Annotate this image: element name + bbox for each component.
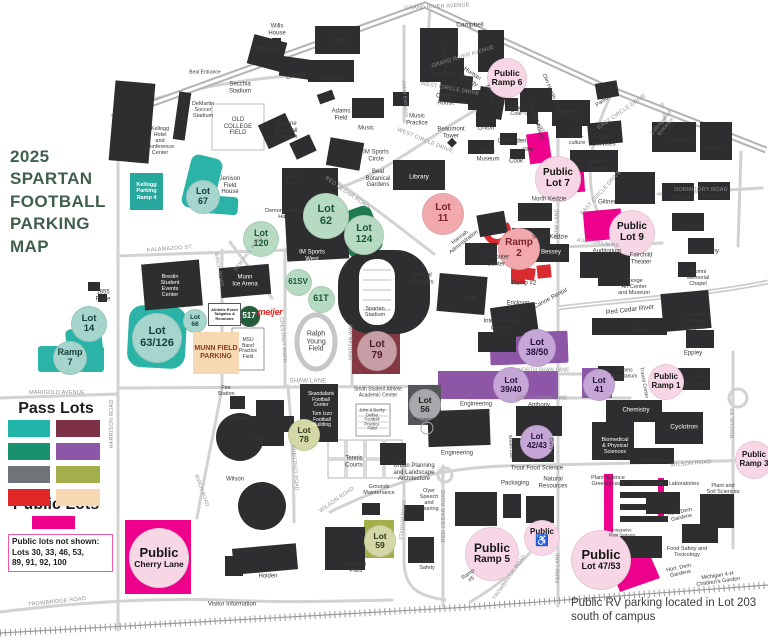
lot-62-line2: 62 bbox=[320, 216, 332, 228]
legend-pass-swatch-0 bbox=[8, 420, 50, 437]
ramp-2: Ramp2 bbox=[498, 228, 540, 270]
lot-78: Lot78 bbox=[288, 419, 320, 451]
lot-124-line2: 124 bbox=[356, 235, 373, 246]
public-lot-47-53-line1: Public bbox=[581, 548, 620, 562]
lot-63-126: Lot63/126 bbox=[132, 313, 182, 363]
public-lot-7: PublicLot 7 bbox=[535, 156, 581, 202]
lot-67: Lot67 bbox=[186, 180, 220, 214]
lot-14-line2: 14 bbox=[84, 324, 95, 334]
public-ramp-6: PublicRamp 6 bbox=[487, 58, 527, 98]
tailgate-sign-text: Reunions bbox=[215, 317, 233, 322]
lot-78-line2: 78 bbox=[299, 435, 308, 444]
public-lot-9: PublicLot 9 bbox=[609, 210, 655, 256]
lot-68-line2: 68 bbox=[191, 321, 198, 328]
lot-41-line2: 41 bbox=[594, 385, 603, 394]
public-ramp-3: PublicRamp 3 bbox=[735, 441, 768, 479]
munn-field-parking-text: PARKING bbox=[200, 353, 232, 361]
public-lot-47-53-line2: Lot 47/53 bbox=[581, 562, 620, 572]
public-ramp-6-line2: Ramp 6 bbox=[492, 78, 523, 87]
legend-pass-swatch-1 bbox=[56, 420, 100, 437]
legend-pass-swatch-5 bbox=[56, 466, 100, 483]
public-lot-9-line2: Lot 9 bbox=[620, 233, 644, 244]
legend-pass-swatch-6 bbox=[8, 489, 50, 506]
public-cherry-lane-line1: Public bbox=[139, 546, 178, 560]
lot-61t-line1: 61T bbox=[313, 294, 329, 304]
kellogg-parking-ramp-4: KelloggParkingRamp 4 bbox=[130, 173, 163, 210]
lot-68: Lot68 bbox=[183, 309, 207, 333]
ramp-7-line2: 7 bbox=[67, 358, 72, 368]
public-ramp-1: PublicRamp 1 bbox=[648, 364, 684, 400]
ramp-2-line2: 2 bbox=[516, 249, 522, 260]
kellogg-parking-ramp-4-text: Ramp 4 bbox=[137, 195, 157, 201]
lot-61t: 61T bbox=[308, 286, 335, 313]
lot-38-50: Lot38/50 bbox=[518, 329, 556, 367]
lot-39-40-line2: 39/40 bbox=[500, 385, 521, 394]
lot-11: Lot11 bbox=[422, 193, 464, 235]
lot-56: Lot56 bbox=[409, 389, 441, 421]
lot-62: Lot62 bbox=[303, 193, 349, 239]
public-ramp-5-line2: Ramp 5 bbox=[474, 555, 510, 566]
lot-67-line2: 67 bbox=[198, 197, 208, 207]
lot-11-line2: 11 bbox=[438, 214, 449, 225]
public-lot-47-53: PublicLot 47/53 bbox=[571, 530, 631, 590]
lot-63-126-line2: 63/126 bbox=[140, 338, 174, 350]
munn-field-parking-text: MUNN FIELD bbox=[194, 345, 237, 353]
lot-120-line2: 120 bbox=[253, 239, 268, 249]
lot-41: Lot41 bbox=[583, 369, 615, 401]
public-ramp-1-line2: Ramp 1 bbox=[652, 382, 681, 391]
lot-61sv-line1: 61SV bbox=[288, 278, 308, 287]
lot-68-line1: Lot bbox=[190, 314, 200, 321]
public-accessible-line2: ♿ bbox=[535, 536, 549, 548]
public-ramp-5: PublicRamp 5 bbox=[465, 527, 519, 581]
legend-pass-lots-title: Pass Lots bbox=[8, 400, 104, 418]
legend-pass-swatch-2 bbox=[8, 443, 50, 460]
lot-38-50-line2: 38/50 bbox=[526, 348, 549, 358]
public-cherry-lane: PublicCherry Lane bbox=[129, 528, 189, 588]
legend-pass-swatch-4 bbox=[8, 466, 50, 483]
public-cherry-lane-line2: Cherry Lane bbox=[134, 560, 184, 569]
public-lot-7-line2: Lot 7 bbox=[546, 179, 570, 190]
lot-42-43-line2: 42/43 bbox=[527, 442, 547, 451]
public-accessible: Public♿ bbox=[524, 520, 560, 556]
legend-pass-swatch-7 bbox=[56, 489, 100, 506]
lot-120: Lot120 bbox=[243, 221, 279, 257]
lot-79: Lot79 bbox=[357, 331, 397, 371]
legend-note: Public lots not shown: Lots 30, 33, 46, … bbox=[8, 534, 113, 572]
lot-79-line2: 79 bbox=[371, 351, 382, 362]
lot-56-line2: 56 bbox=[420, 405, 429, 414]
lot-39-40: Lot39/40 bbox=[493, 367, 529, 403]
spartan-stadium-shape bbox=[338, 250, 430, 334]
ramp-7: Ramp7 bbox=[53, 341, 87, 375]
public-ramp-3-line2: Ramp 3 bbox=[740, 460, 768, 469]
lot-14: Lot14 bbox=[71, 306, 107, 342]
ralph-young-track bbox=[297, 315, 335, 369]
lot-124: Lot124 bbox=[344, 215, 384, 255]
tailgate-sign: Athletic EventTailgates &Reunions bbox=[208, 303, 241, 326]
lot-59-line2: 59 bbox=[375, 541, 384, 550]
lot-42-43: Lot42/43 bbox=[520, 425, 554, 459]
legend-public-swatch bbox=[32, 516, 75, 529]
campus-parking-map: 2025 SPARTAN FOOTBALL PARKING MAP Pass L… bbox=[0, 0, 768, 639]
munn-field-parking: MUNN FIELDPARKING bbox=[193, 332, 239, 374]
lot-61sv: 61SV bbox=[285, 269, 312, 296]
legend-pass-swatch-3 bbox=[56, 443, 100, 460]
map-title: 2025 SPARTAN FOOTBALL PARKING MAP bbox=[10, 146, 106, 258]
lot-59: Lot59 bbox=[364, 525, 396, 557]
lot-ranger-517-line1: 517 bbox=[242, 312, 255, 321]
rv-parking-note: Public RV parking located in Lot 203 sou… bbox=[571, 597, 766, 625]
